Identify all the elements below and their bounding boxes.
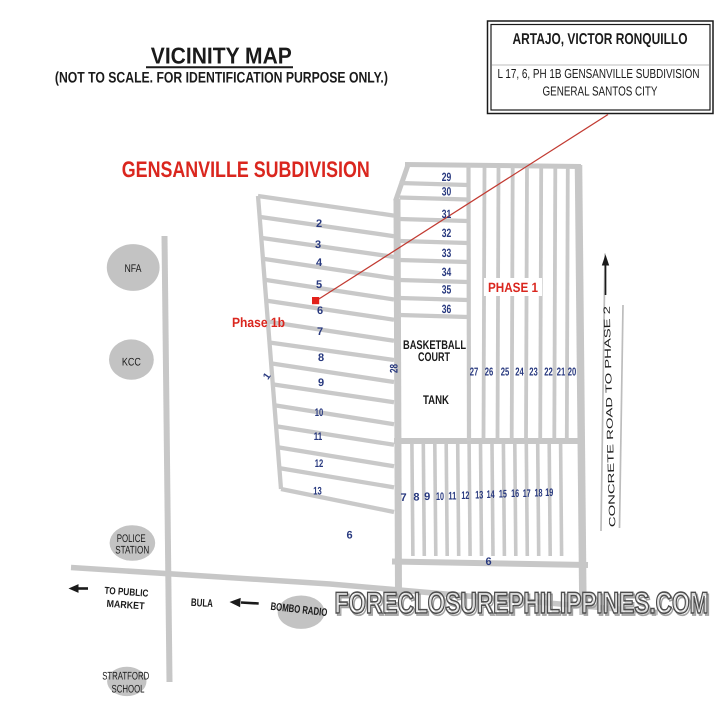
svg-text:5: 5 [316,279,322,291]
svg-text:COURT: COURT [418,350,450,364]
svg-text:14: 14 [487,489,496,501]
svg-text:6: 6 [317,305,323,317]
svg-text:36: 36 [442,302,452,316]
svg-text:(NOT TO SCALE. FOR IDENTIFICAT: (NOT TO SCALE. FOR IDENTIFICATION PURPOS… [55,69,388,86]
svg-text:GENSANVILLE SUBDIVISION: GENSANVILLE SUBDIVISION [122,157,370,182]
svg-text:22: 22 [544,367,553,379]
svg-text:13: 13 [313,486,322,498]
svg-text:ARTAJO, VICTOR RONQUILLO: ARTAJO, VICTOR RONQUILLO [513,31,688,48]
svg-text:SCHOOL: SCHOOL [112,684,145,696]
svg-text:26: 26 [485,367,494,379]
svg-text:VICINITY MAP: VICINITY MAP [151,43,292,69]
svg-text:8: 8 [318,352,324,364]
svg-text:13: 13 [475,489,483,501]
svg-text:FORECLOSUREPHILIPPINES.COM: FORECLOSUREPHILIPPINES.COM [335,587,709,620]
svg-text:12: 12 [461,490,469,502]
svg-text:10: 10 [315,407,324,419]
svg-text:11: 11 [448,490,456,502]
svg-text:29: 29 [442,170,452,184]
svg-text:4: 4 [316,257,323,269]
svg-text:31: 31 [442,207,452,221]
svg-text:KCC: KCC [122,357,141,369]
svg-text:11: 11 [314,431,323,443]
svg-text:POLICE: POLICE [117,533,146,545]
svg-text:MARKET: MARKET [106,599,145,613]
svg-text:24: 24 [515,367,524,379]
svg-text:6: 6 [485,556,491,568]
svg-text:10: 10 [436,491,444,503]
svg-text:12: 12 [315,458,324,470]
svg-text:30: 30 [442,184,452,198]
svg-text:TO PUBLIC: TO PUBLIC [104,586,149,600]
svg-text:8: 8 [413,492,419,504]
svg-text:NFA: NFA [125,263,143,275]
svg-text:STATION: STATION [115,545,149,557]
svg-text:32: 32 [442,226,452,240]
svg-text:35: 35 [442,282,452,296]
svg-text:7: 7 [317,326,323,338]
svg-text:7: 7 [400,492,406,504]
svg-text:25: 25 [501,367,510,379]
svg-text:9: 9 [424,491,430,503]
svg-text:6: 6 [346,530,352,542]
svg-text:17: 17 [523,488,531,500]
svg-text:2: 2 [316,218,322,230]
svg-text:BULA: BULA [191,597,214,610]
svg-text:GENERAL SANTOS CITY: GENERAL SANTOS CITY [543,84,658,99]
svg-text:28: 28 [389,364,401,373]
svg-text:20: 20 [568,367,577,379]
svg-text:Phase 1b: Phase 1b [232,315,285,330]
svg-text:15: 15 [499,489,507,501]
svg-text:34: 34 [442,265,452,279]
svg-text:18: 18 [535,487,543,499]
svg-text:STRATFORD: STRATFORD [102,671,149,683]
svg-text:16: 16 [511,488,519,500]
svg-text:PHASE 1: PHASE 1 [488,280,538,295]
svg-text:33: 33 [442,246,452,260]
svg-text:19: 19 [545,487,553,499]
svg-text:L 17, 6, PH 1B GENSANVILLE SUB: L 17, 6, PH 1B GENSANVILLE SUBDIVISION [498,66,700,81]
svg-text:27: 27 [470,367,479,379]
svg-text:CONCRETE ROAD TO PHASE 2: CONCRETE ROAD TO PHASE 2 [602,306,618,527]
svg-text:TANK: TANK [423,393,449,407]
svg-text:3: 3 [315,239,321,251]
svg-text:9: 9 [318,377,324,389]
svg-text:23: 23 [529,367,538,379]
svg-text:21: 21 [557,367,566,379]
